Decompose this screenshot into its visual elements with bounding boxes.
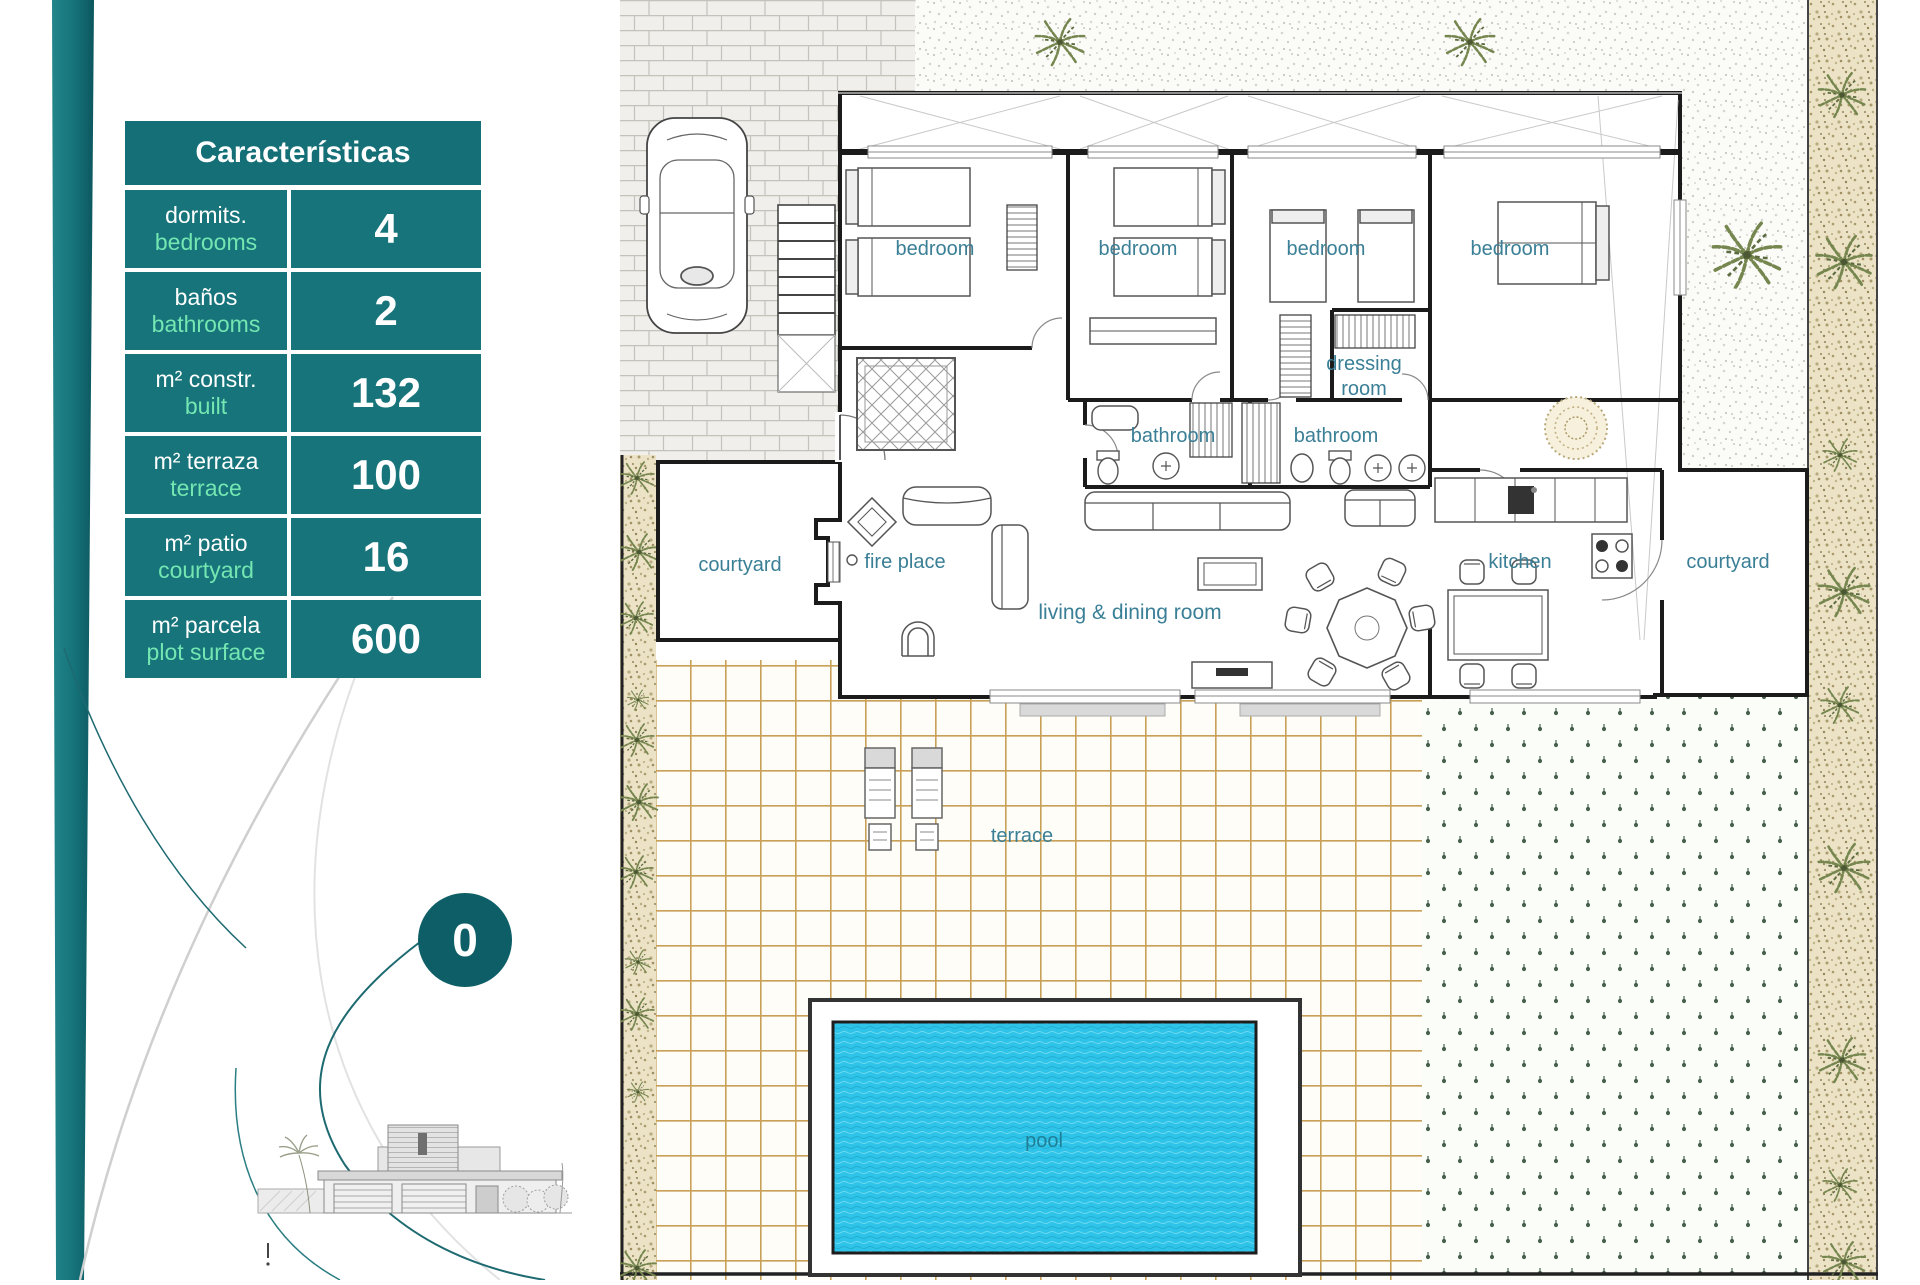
label-english: terrace <box>170 475 242 502</box>
label-bathroom-2: bathroom <box>1294 425 1379 447</box>
row-label: m² patio courtyard <box>125 518 287 596</box>
table-row: baños bathrooms 2 <box>125 272 481 350</box>
label-english: courtyard <box>158 557 254 584</box>
characteristics-table: Características dormits. bedrooms 4 baño… <box>125 121 481 682</box>
phase-number-badge: 0 <box>418 893 512 987</box>
lawn-area <box>1422 640 1808 1280</box>
gravel-band-right <box>1808 0 1878 1280</box>
table-title: Características <box>125 121 481 185</box>
info-panel: Características dormits. bedrooms 4 baño… <box>0 0 620 1280</box>
row-label: m² constr. built <box>125 354 287 432</box>
table-row: dormits. bedrooms 4 <box>125 190 481 268</box>
row-value: 132 <box>291 354 481 432</box>
table-row: m² parcela plot surface 600 <box>125 600 481 678</box>
label-spanish: m² patio <box>164 530 247 557</box>
row-label: m² terraza terrace <box>125 436 287 514</box>
label-english: bathrooms <box>152 311 261 338</box>
car <box>640 118 754 333</box>
villa-sketch <box>258 1125 572 1213</box>
label-bedroom-3: bedroom <box>1287 238 1366 260</box>
label-spanish: m² parcela <box>152 612 261 639</box>
label-spanish: baños <box>175 284 238 311</box>
table-row: m² patio courtyard 16 <box>125 518 481 596</box>
floor-plan: bedroom bedroom bedroom bedroom dressing… <box>620 0 1920 1280</box>
label-english: plot surface <box>147 639 266 666</box>
row-label: dormits. bedrooms <box>125 190 287 268</box>
floor-plan-area: bedroom bedroom bedroom bedroom dressing… <box>620 0 1920 1280</box>
label-bedroom-2: bedroom <box>1099 238 1178 260</box>
row-value: 4 <box>291 190 481 268</box>
table-row: m² terraza terrace 100 <box>125 436 481 514</box>
row-value: 2 <box>291 272 481 350</box>
label-english: bedrooms <box>155 229 257 256</box>
row-value: 600 <box>291 600 481 678</box>
label-english: built <box>185 393 227 420</box>
label-bedroom-4: bedroom <box>1471 238 1550 260</box>
label-spanish: dormits. <box>165 202 247 229</box>
label-dressing-room-2: room <box>1341 378 1387 400</box>
teal-stripe-accent <box>52 0 94 1280</box>
label-kitchen: kitchen <box>1488 551 1551 573</box>
label-living-dining: living & dining room <box>1038 601 1221 624</box>
plant-ball <box>1545 397 1607 459</box>
row-value: 100 <box>291 436 481 514</box>
label-bedroom-1: bedroom <box>896 238 975 260</box>
entry-stairs <box>778 205 835 392</box>
label-bathroom-1: bathroom <box>1131 425 1216 447</box>
row-label: m² parcela plot surface <box>125 600 287 678</box>
gravel-white-right <box>1678 95 1808 472</box>
label-pool: pool <box>1025 1130 1063 1152</box>
row-value: 16 <box>291 518 481 596</box>
label-spanish: m² terraza <box>154 448 259 475</box>
label-spanish: m² constr. <box>156 366 257 393</box>
label-fire-place: fire place <box>864 551 945 573</box>
sun-lounger <box>912 748 942 850</box>
north-windows <box>868 146 1660 158</box>
label-courtyard-right: courtyard <box>1686 551 1769 573</box>
label-terrace: terrace <box>991 825 1053 847</box>
label-dressing-room: dressing <box>1326 353 1402 375</box>
sun-lounger <box>865 748 895 850</box>
tick-mark <box>266 1243 269 1266</box>
brochure-page: Características dormits. bedrooms 4 baño… <box>0 0 1920 1280</box>
label-courtyard-left: courtyard <box>698 554 781 576</box>
table-row: m² constr. built 132 <box>125 354 481 432</box>
row-label: baños bathrooms <box>125 272 287 350</box>
